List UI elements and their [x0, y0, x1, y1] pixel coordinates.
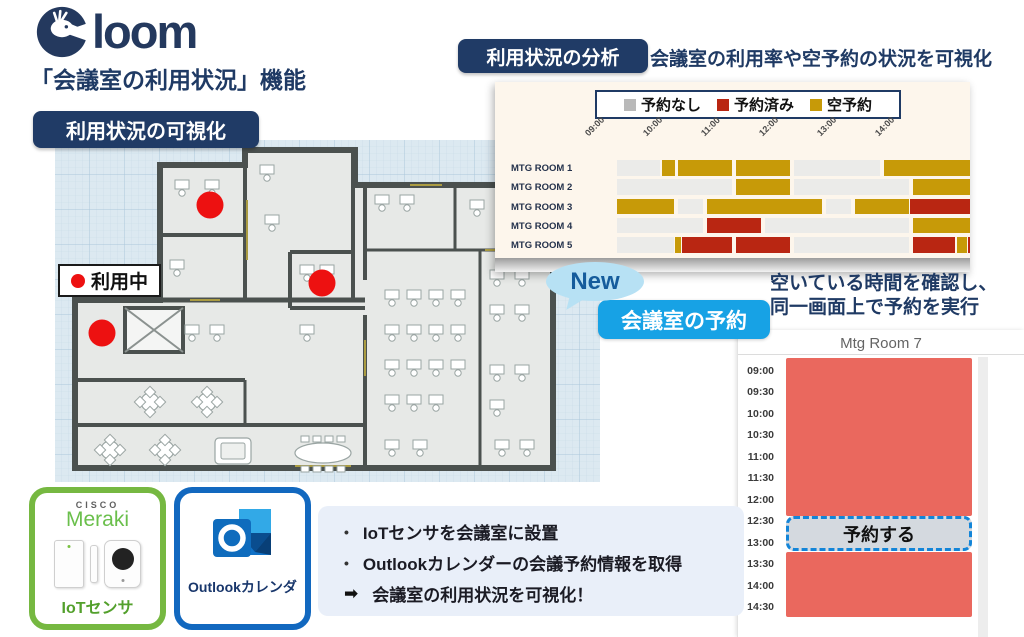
- cloom-logo: loom: [36, 6, 196, 58]
- reserve-caption-line1: 空いている時間を確認し、: [770, 272, 997, 296]
- booking-time-label: 09:30: [742, 386, 774, 398]
- gantt-room-label: MTG ROOM 5: [511, 240, 613, 251]
- gantt-segment-ghost: [913, 218, 970, 234]
- chart-legend: 予約なし予約済み空予約: [595, 90, 901, 119]
- occupied-room-dot: [309, 269, 336, 296]
- occupied-room-dot: [196, 191, 223, 218]
- analysis-badge: 利用状況の分析: [458, 39, 648, 73]
- gantt-room-label: MTG ROOM 2: [511, 182, 613, 193]
- reserve-caption-line2: 同一画面上で予約を実行: [770, 296, 997, 320]
- gantt-segment-booked: [707, 218, 761, 234]
- gantt-row: [617, 179, 970, 195]
- booking-time-label: 14:00: [742, 580, 774, 592]
- outlook-calendar-label: Outlookカレンダ: [188, 577, 297, 597]
- slide: loom 「会議室の利用状況」機能 利用状況の可視化: [0, 0, 1024, 637]
- gantt-segment-none: [794, 179, 909, 195]
- booking-time-label: 10:30: [742, 429, 774, 441]
- visualization-badge: 利用状況の可視化: [33, 111, 259, 148]
- outlook-card: Outlookカレンダ: [174, 487, 311, 630]
- gantt-segment-ghost: [617, 199, 674, 215]
- in-use-label: 利用中: [91, 267, 148, 294]
- gantt-segment-ghost: [957, 237, 966, 253]
- cloom-logo-text: loom: [92, 7, 196, 57]
- booking-time-label: 13:00: [742, 537, 774, 549]
- new-bubble: New: [546, 262, 644, 301]
- legend-swatch-none: [624, 99, 636, 111]
- iot-sensor-label: IoTセンサ: [62, 594, 134, 618]
- booking-separator: [738, 354, 1024, 355]
- gantt-segment-none: [826, 199, 851, 215]
- gantt-segment-none: [678, 199, 703, 215]
- gantt-segment-booked: [968, 237, 970, 253]
- analysis-caption: 会議室の利用率や空予約の状況を可視化: [650, 44, 992, 71]
- cloom-logo-mark-icon: [36, 6, 88, 58]
- reserve-caption: 空いている時間を確認し、 同一画面上で予約を実行: [770, 272, 997, 320]
- bullet-text-2: Outlookカレンダーの会議予約情報を取得: [363, 550, 682, 575]
- gantt-segment-booked: [913, 237, 956, 253]
- gantt-segment-ghost: [675, 237, 681, 253]
- gantt-segment-none: [794, 160, 880, 176]
- booking-time-label: 14:30: [742, 601, 774, 613]
- gantt-segment-ghost: [662, 160, 676, 176]
- bullet-item: • Outlookカレンダーの会議予約情報を取得: [344, 550, 736, 575]
- motion-sensor-icon: [104, 540, 141, 588]
- busy-block: [786, 358, 972, 516]
- booking-time-label: 10:00: [742, 408, 774, 420]
- right-arrow-icon: ➡: [344, 584, 358, 604]
- gantt-room-label: MTG ROOM 1: [511, 163, 613, 174]
- gantt-segment-none: [617, 218, 703, 234]
- booking-time-label: 12:30: [742, 515, 774, 527]
- new-label: New: [570, 268, 619, 296]
- gantt-segment-ghost: [678, 160, 732, 176]
- reserve-button[interactable]: 予約する: [786, 516, 972, 551]
- booking-time-label: 11:30: [742, 472, 774, 484]
- gantt-room-label: MTG ROOM 3: [511, 202, 613, 213]
- gantt-segment-none: [617, 179, 732, 195]
- gantt-segment-ghost: [736, 179, 790, 195]
- occupied-room-dot: [88, 319, 115, 346]
- gantt-row: [617, 218, 970, 234]
- booking-time-label: 09:00: [742, 365, 774, 377]
- booking-room-title: Mtg Room 7: [738, 335, 1024, 352]
- booking-panel: Mtg Room 7 09:0009:3010:0010:3011:0011:3…: [737, 330, 1024, 637]
- gantt-row: [617, 237, 970, 253]
- gantt-row: [617, 160, 970, 176]
- gantt-segment-booked: [682, 237, 732, 253]
- booking-time-label: 13:30: [742, 558, 774, 570]
- booking-time-label: 12:00: [742, 494, 774, 506]
- feature-title: 「会議室の利用状況」機能: [30, 61, 306, 95]
- gantt-segment-ghost: [855, 199, 909, 215]
- meraki-card: CISCO Meraki IoTセンサ: [29, 487, 166, 630]
- gantt-segment-none: [794, 237, 909, 253]
- bullet-conclusion-text: 会議室の利用状況を可視化！: [372, 581, 593, 606]
- bullet-dot-icon: •: [344, 524, 349, 540]
- bullet-item: • IoTセンサを会議室に設置: [344, 519, 736, 544]
- legend-swatch-ghost: [810, 99, 822, 111]
- magnet-sensor-icon: [90, 545, 98, 583]
- gantt-segment-ghost: [707, 199, 822, 215]
- gantt-segment-none: [765, 218, 909, 234]
- gantt-segment-booked: [910, 199, 970, 215]
- booking-time-label: 11:00: [742, 451, 774, 463]
- gantt-segment-ghost: [913, 179, 970, 195]
- bullet-dot-icon: •: [344, 555, 349, 571]
- gantt-segment-booked: [736, 237, 790, 253]
- meraki-brand: Meraki: [66, 510, 129, 530]
- gantt-segment-ghost: [736, 160, 790, 176]
- reserve-badge: 会議室の予約: [598, 300, 770, 339]
- analysis-chart-panel: 予約なし予約済み空予約 09:0010:0011:0012:0013:0014:…: [495, 82, 970, 272]
- gantt-segment-none: [617, 160, 660, 176]
- meraki-sensors-image: [54, 538, 141, 590]
- bullet-conclusion: ➡ 会議室の利用状況を可視化！: [344, 581, 736, 606]
- busy-block: [786, 552, 972, 617]
- gantt-row: [617, 199, 970, 215]
- in-use-dot-icon: [71, 274, 85, 288]
- gantt-segment-ghost: [884, 160, 970, 176]
- bullet-text-1: IoTセンサを会議室に設置: [363, 519, 559, 544]
- gantt-room-label: MTG ROOM 4: [511, 221, 613, 232]
- gantt-segment-none: [617, 237, 674, 253]
- in-use-legend: 利用中: [58, 264, 161, 297]
- door-sensor-icon: [54, 540, 84, 588]
- summary-bullets: • IoTセンサを会議室に設置 • Outlookカレンダーの会議予約情報を取得…: [318, 506, 744, 616]
- booking-scrollbar[interactable]: [978, 357, 988, 637]
- outlook-icon: [209, 507, 277, 567]
